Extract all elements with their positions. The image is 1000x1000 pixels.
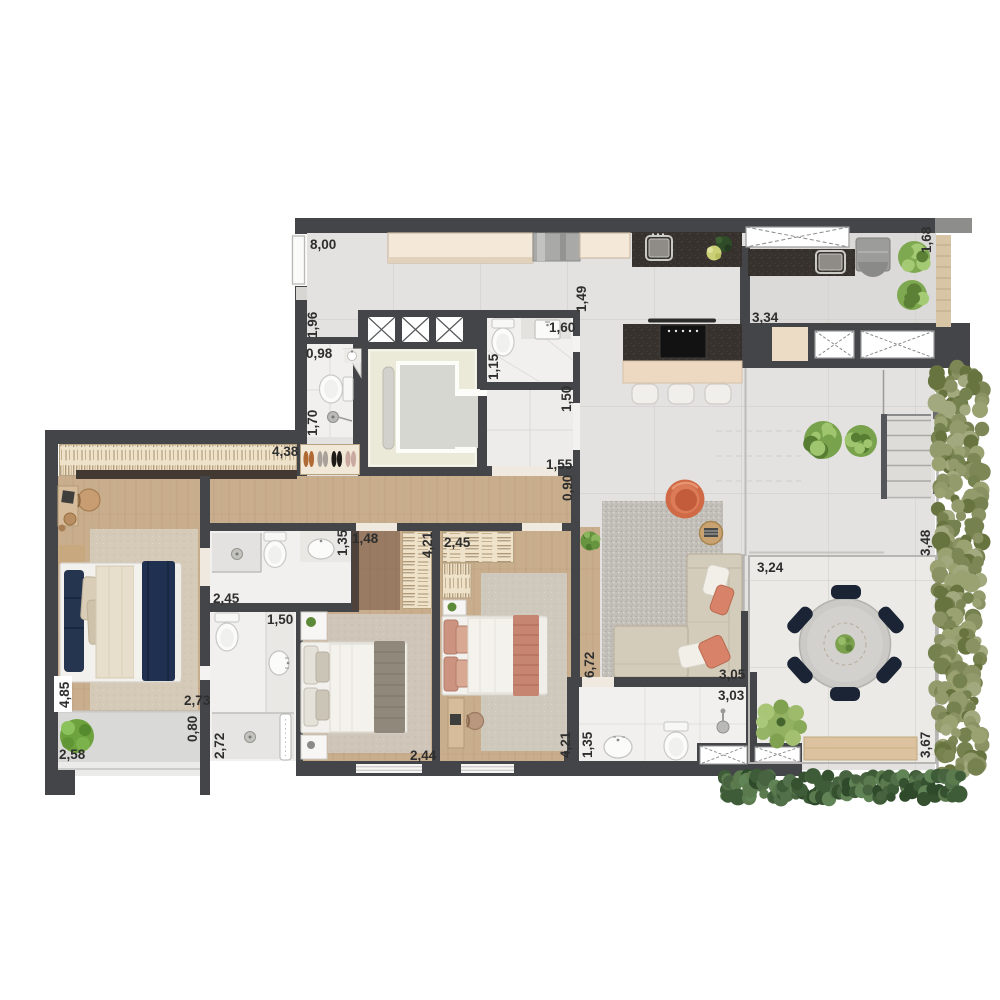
svg-text:3,67: 3,67 xyxy=(918,732,933,758)
svg-text:4,21: 4,21 xyxy=(420,531,435,558)
svg-text:1,55: 1,55 xyxy=(546,457,573,472)
svg-text:1,50: 1,50 xyxy=(559,386,574,412)
svg-text:2,45: 2,45 xyxy=(444,535,471,550)
svg-text:0,80: 0,80 xyxy=(185,716,200,742)
svg-text:4,21: 4,21 xyxy=(558,731,573,758)
svg-text:3,24: 3,24 xyxy=(757,560,784,575)
svg-text:3,03: 3,03 xyxy=(718,688,745,703)
svg-text:2,73: 2,73 xyxy=(184,693,211,708)
svg-text:1,35: 1,35 xyxy=(580,731,595,758)
svg-text:2,45: 2,45 xyxy=(213,591,240,606)
svg-text:8,00: 8,00 xyxy=(310,237,336,252)
svg-text:2,44: 2,44 xyxy=(410,748,437,763)
svg-text:1,15: 1,15 xyxy=(486,353,501,380)
svg-text:3,48: 3,48 xyxy=(918,529,933,556)
svg-text:2,58: 2,58 xyxy=(59,747,86,762)
svg-text:3,05: 3,05 xyxy=(719,667,746,682)
svg-text:1,60: 1,60 xyxy=(549,320,575,335)
svg-text:1,49: 1,49 xyxy=(574,286,589,312)
svg-text:1,70: 1,70 xyxy=(305,410,320,436)
svg-text:3,34: 3,34 xyxy=(752,310,779,325)
svg-text:0,98: 0,98 xyxy=(306,346,333,361)
svg-text:6,72: 6,72 xyxy=(582,652,597,678)
svg-text:4,85: 4,85 xyxy=(57,681,72,708)
svg-text:1,68: 1,68 xyxy=(919,226,934,253)
svg-text:0,90: 0,90 xyxy=(560,475,575,501)
svg-text:1,35: 1,35 xyxy=(335,529,350,556)
svg-text:1,48: 1,48 xyxy=(352,531,379,546)
svg-text:1,96: 1,96 xyxy=(305,311,320,338)
svg-text:4,38: 4,38 xyxy=(272,444,299,459)
svg-text:1,50: 1,50 xyxy=(267,612,293,627)
svg-text:2,72: 2,72 xyxy=(212,733,227,759)
